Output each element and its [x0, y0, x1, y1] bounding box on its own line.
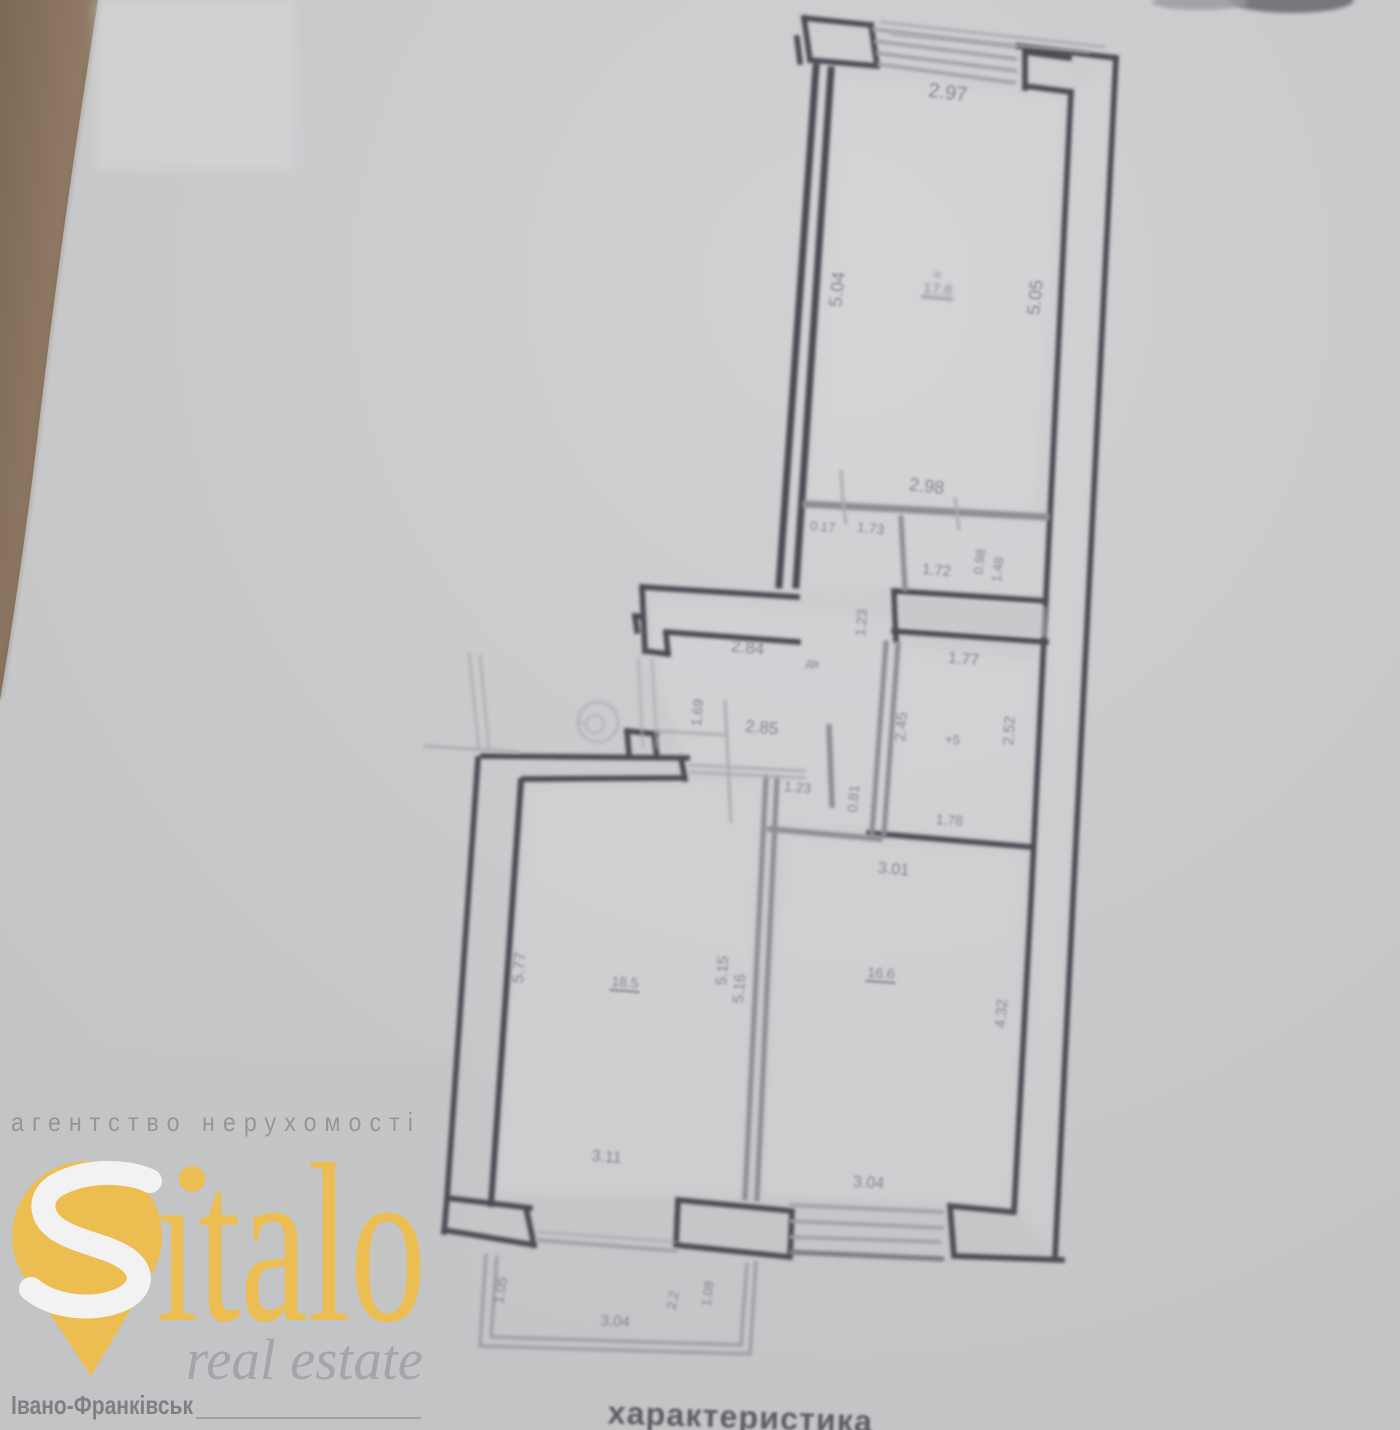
svg-text:3.01: 3.01: [877, 860, 910, 880]
svg-text:5.05: 5.05: [1023, 279, 1047, 316]
svg-text:Івано-Франківськ: Івано-Франківськ: [11, 1390, 194, 1420]
svg-text:5.15: 5.15: [713, 955, 732, 986]
svg-text:1.48: 1.48: [989, 556, 1007, 583]
svg-text:2.2: 2.2: [664, 1290, 682, 1310]
svg-text:3.04: 3.04: [600, 1312, 630, 1331]
svg-text:5.04: 5.04: [825, 271, 849, 308]
svg-text:1.08: 1.08: [699, 1280, 717, 1307]
svg-text:1.69: 1.69: [688, 698, 706, 727]
svg-text:1.23: 1.23: [783, 778, 812, 796]
svg-text:5.16: 5.16: [730, 973, 749, 1004]
svg-text:1.23: 1.23: [852, 608, 870, 637]
svg-text:2.45: 2.45: [892, 712, 911, 742]
svg-text:3.04: 3.04: [852, 1174, 884, 1193]
svg-text:1.77: 1.77: [947, 650, 980, 670]
svg-text:2.84: 2.84: [730, 636, 765, 658]
svg-text:5.77: 5.77: [510, 951, 530, 984]
svg-text:18.5: 18.5: [611, 973, 640, 991]
svg-text:0.98: 0.98: [971, 548, 989, 575]
svg-text:дв: дв: [805, 655, 820, 670]
svg-text:2.85: 2.85: [744, 717, 779, 739]
svg-text:3.11: 3.11: [591, 1148, 622, 1167]
svg-text:real estate: real estate: [186, 1327, 423, 1392]
svg-text:1.72: 1.72: [921, 561, 952, 580]
svg-text:+5: +5: [945, 731, 961, 747]
svg-text:2.97: 2.97: [927, 80, 968, 107]
svg-text:1.73: 1.73: [856, 519, 885, 538]
svg-text:2.52: 2.52: [1000, 716, 1019, 746]
svg-text:0.17: 0.17: [809, 518, 836, 536]
svg-text:2.98: 2.98: [908, 474, 945, 498]
svg-text:16.6: 16.6: [867, 964, 896, 982]
svg-text:0.81: 0.81: [844, 784, 862, 813]
svg-text:1.78: 1.78: [935, 811, 964, 829]
svg-text:4.32: 4.32: [992, 998, 1011, 1029]
